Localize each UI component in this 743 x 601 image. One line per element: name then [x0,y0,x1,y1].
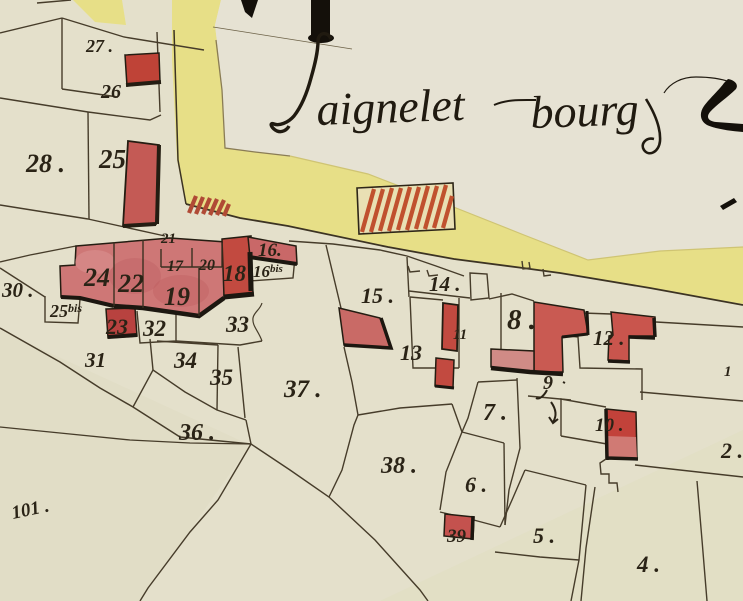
svg-text:20: 20 [198,257,215,274]
svg-text:bourg: bourg [530,83,640,138]
svg-text:2 .: 2 . [720,438,743,463]
svg-text:28 .: 28 . [25,149,65,178]
svg-text:5 .: 5 . [533,523,555,548]
svg-text:10 .: 10 . [595,415,624,436]
svg-text:21: 21 [160,231,176,247]
svg-text:17: 17 [167,258,184,275]
svg-text:14 .: 14 . [429,272,461,296]
svg-text:16.: 16. [258,240,282,261]
svg-text:9: 9 [543,372,553,394]
svg-text:11: 11 [453,327,467,343]
svg-text:34: 34 [173,348,197,373]
svg-text:8 .: 8 . [507,304,536,336]
svg-text:36 .: 36 . [178,420,215,446]
svg-text:39: 39 [446,526,467,547]
svg-text:27 .: 27 . [85,36,113,56]
svg-text:30 .: 30 . [1,278,34,302]
svg-text:31: 31 [84,348,106,372]
svg-text:24: 24 [83,263,110,292]
svg-text:1: 1 [724,364,732,380]
svg-text:26: 26 [100,81,121,103]
svg-text:23: 23 [105,314,128,339]
svg-text:22: 22 [117,269,144,298]
svg-text:25: 25 [98,144,126,174]
svg-text:32: 32 [142,316,166,341]
svg-text:15 .: 15 . [361,283,394,308]
svg-text:19: 19 [164,282,190,311]
svg-text:37 .: 37 . [283,376,322,403]
svg-text:33: 33 [225,312,249,337]
svg-text:13: 13 [400,340,422,365]
svg-text:7 .: 7 . [483,400,507,426]
svg-text:18: 18 [223,261,247,286]
svg-text:38 .: 38 . [380,453,417,479]
svg-text:4 .: 4 . [636,552,660,577]
svg-text:aignelet: aignelet [316,79,467,135]
svg-text:12 .: 12 . [593,326,625,350]
svg-text:35: 35 [209,365,233,390]
svg-text:6 .: 6 . [465,472,487,497]
